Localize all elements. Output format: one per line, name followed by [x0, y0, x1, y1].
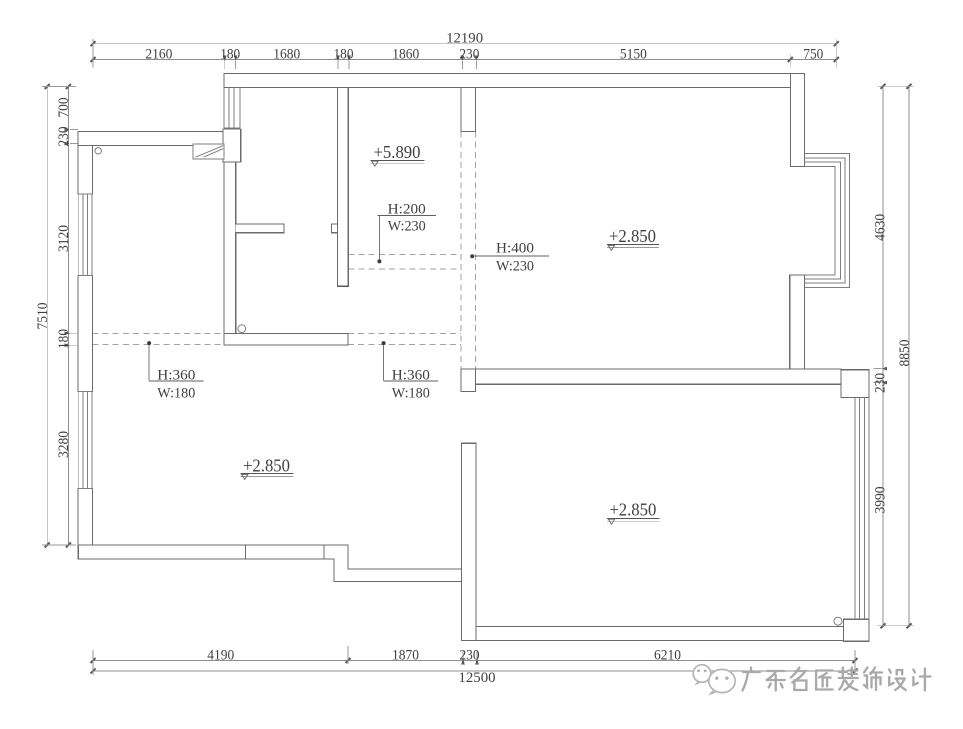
svg-text:H:200: H:200	[388, 201, 426, 217]
svg-text:6210: 6210	[654, 647, 681, 663]
svg-text:+2.850: +2.850	[609, 226, 656, 246]
svg-text:W:230: W:230	[496, 259, 534, 275]
svg-text:180: 180	[220, 46, 240, 62]
svg-text:230: 230	[459, 46, 479, 62]
svg-text:1870: 1870	[392, 647, 419, 663]
svg-text:700: 700	[56, 98, 72, 118]
svg-text:750: 750	[803, 46, 823, 62]
svg-text:H:400: H:400	[496, 241, 534, 257]
svg-text:+5.890: +5.890	[374, 142, 421, 162]
svg-text:3120: 3120	[56, 225, 72, 252]
svg-text:180: 180	[334, 46, 354, 62]
svg-text:3280: 3280	[56, 431, 72, 458]
svg-text:230: 230	[56, 127, 72, 147]
svg-text:1680: 1680	[273, 46, 300, 62]
svg-text:7510: 7510	[35, 303, 51, 330]
svg-text:5150: 5150	[620, 46, 647, 62]
svg-text:W:180: W:180	[392, 386, 430, 402]
svg-text:8850: 8850	[897, 340, 913, 367]
svg-text:12190: 12190	[446, 31, 483, 47]
svg-text:W:230: W:230	[388, 219, 426, 235]
svg-text:3990: 3990	[872, 487, 888, 514]
svg-text:+2.850: +2.850	[609, 499, 656, 519]
svg-text:4190: 4190	[207, 647, 234, 663]
svg-text:+2.850: +2.850	[243, 456, 290, 476]
svg-text:230: 230	[460, 647, 480, 663]
svg-text:2160: 2160	[145, 46, 172, 62]
svg-text:W:180: W:180	[157, 386, 195, 402]
svg-text:230: 230	[872, 373, 888, 393]
svg-text:180: 180	[56, 329, 72, 349]
svg-text:4630: 4630	[872, 214, 888, 241]
svg-text:12500: 12500	[459, 670, 496, 686]
svg-text:1860: 1860	[392, 46, 419, 62]
